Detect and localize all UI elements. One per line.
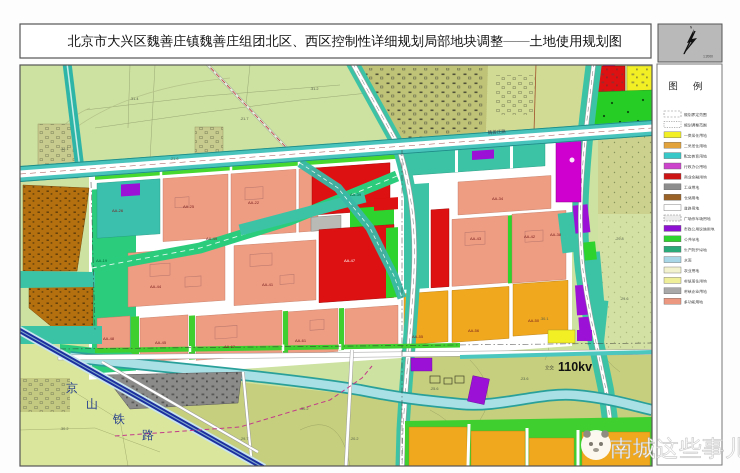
svg-text:-29.8: -29.8 (615, 237, 624, 241)
svg-text:AA-25: AA-25 (183, 204, 195, 209)
svg-text:AA-55: AA-55 (412, 334, 424, 339)
svg-text:.21.6: .21.6 (170, 157, 178, 161)
svg-text:.23.6: .23.6 (520, 377, 528, 381)
svg-text:.20.2: .20.2 (350, 437, 358, 441)
svg-text:.31.2: .31.2 (310, 87, 318, 91)
svg-text:AA-42: AA-42 (524, 234, 536, 239)
svg-text:AA-61: AA-61 (295, 338, 307, 343)
svg-text:.31.4: .31.4 (130, 97, 138, 101)
svg-text:AA-39: AA-39 (350, 192, 362, 197)
svg-text:AA-45: AA-45 (155, 340, 167, 345)
svg-text:AA-19: AA-19 (96, 258, 108, 263)
svg-text:AA-48: AA-48 (103, 336, 115, 341)
svg-text:AA-34: AA-34 (492, 196, 504, 201)
svg-text:1:2000: 1:2000 (703, 55, 713, 59)
svg-text:AA-38: AA-38 (550, 232, 562, 237)
svg-text:.30.2: .30.2 (60, 427, 68, 431)
svg-text:AA-44: AA-44 (150, 284, 162, 289)
svg-text:AA-47: AA-47 (344, 258, 356, 263)
svg-text:110kv: 110kv (558, 360, 592, 374)
svg-text:AA-43: AA-43 (470, 236, 482, 241)
svg-text:.32.1: .32.1 (60, 147, 68, 151)
svg-text:AA-22: AA-22 (248, 200, 260, 205)
svg-text:AA-50: AA-50 (528, 318, 540, 323)
svg-text:.30.2: .30.2 (300, 407, 308, 411)
svg-text:AA-41: AA-41 (262, 282, 274, 287)
svg-text:.29.6: .29.6 (620, 297, 628, 301)
svg-text:AA-26: AA-26 (112, 208, 124, 213)
svg-text:AA-49: AA-49 (206, 236, 218, 241)
svg-text:.30.1: .30.1 (540, 317, 548, 321)
svg-text:.21.7: .21.7 (240, 117, 248, 121)
svg-text:.29.7: .29.7 (240, 437, 248, 441)
svg-text:AA-62: AA-62 (224, 344, 236, 349)
svg-text:AA-56: AA-56 (468, 328, 480, 333)
svg-text:.25.6: .25.6 (430, 387, 438, 391)
